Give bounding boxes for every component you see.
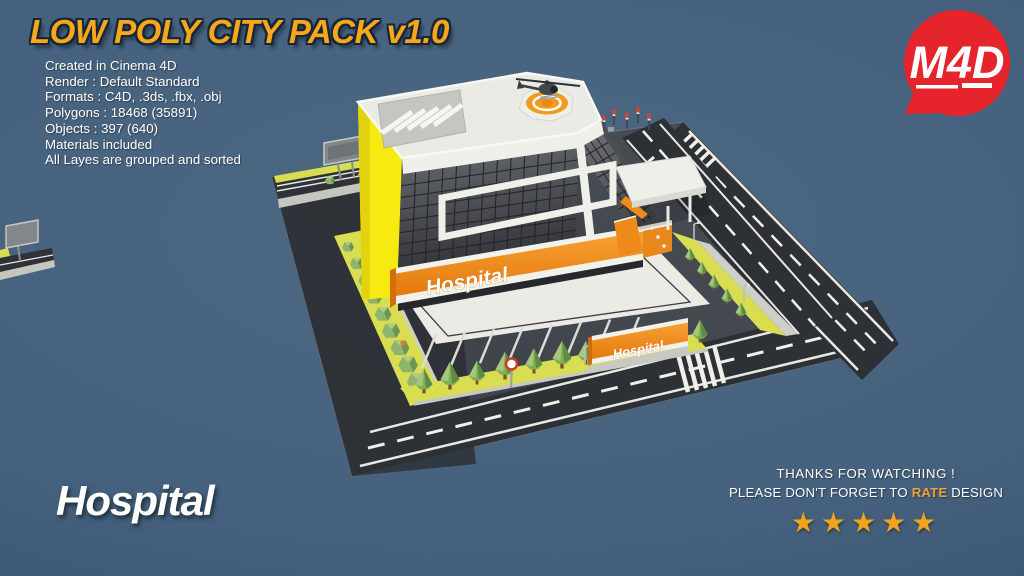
rate-highlight: RATE: [912, 485, 948, 500]
logo-text: M4D: [909, 37, 1004, 88]
spec-line: Render : Default Standard: [45, 74, 241, 90]
left-street-fragment: [0, 220, 55, 280]
promo-poster: Hospital: [0, 0, 1024, 576]
star-rating-icon: ★★★★★: [716, 506, 1016, 539]
footer-credits: THANKS FOR WATCHING ! PLEASE DON'T FORGE…: [716, 466, 1016, 539]
thanks-line: THANKS FOR WATCHING !: [716, 466, 1016, 481]
rate-line: PLEASE DON'T FORGET TO RATE DESIGN: [716, 485, 1016, 500]
spec-line: Polygons : 18468 (35891): [45, 105, 241, 121]
spec-line: Materials included: [45, 137, 241, 153]
specs-list: Created in Cinema 4D Render : Default St…: [45, 58, 241, 168]
spec-line: Objects : 397 (640): [45, 121, 241, 137]
spec-line: Created in Cinema 4D: [45, 58, 241, 74]
spec-line: Formats : C4D, .3ds, .fbx, .obj: [45, 89, 241, 105]
hydrant: [400, 340, 405, 345]
page-title: LOW POLY CITY PACK v1.0: [30, 13, 449, 51]
spec-line: All Layes are grouped and sorted: [45, 152, 241, 168]
m4d-logo-icon: M4D: [900, 8, 1014, 128]
model-name-label: Hospital: [56, 477, 214, 525]
